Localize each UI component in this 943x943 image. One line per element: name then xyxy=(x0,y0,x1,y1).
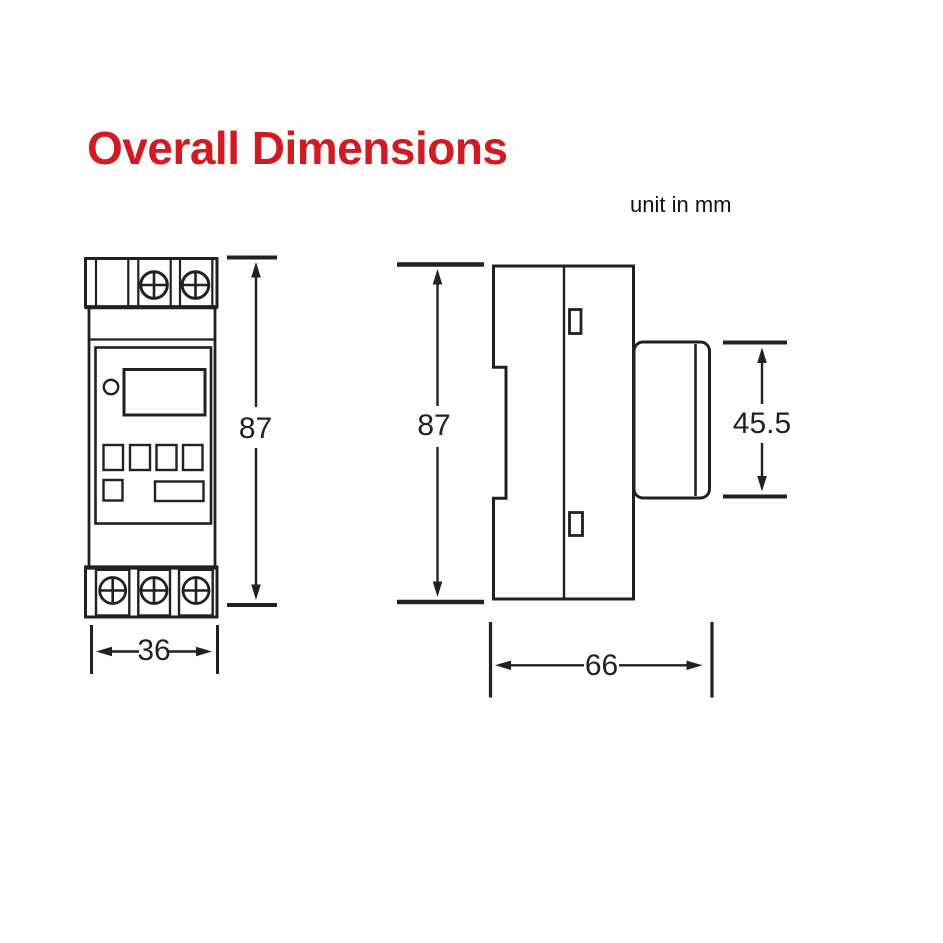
side-view-drawing xyxy=(397,265,787,698)
screw-terminal-icon xyxy=(141,578,167,604)
screw-terminal-icon xyxy=(182,272,209,299)
screw-terminal-icon xyxy=(100,578,126,604)
screw-terminal-icon xyxy=(183,578,209,604)
face-height-label: 45.5 xyxy=(733,409,791,439)
top-terminal-block xyxy=(85,259,217,308)
front-height-label: 87 xyxy=(239,414,272,444)
depth-label: 66 xyxy=(585,651,618,681)
screw-terminal-icon xyxy=(141,272,168,299)
bottom-terminal-block xyxy=(85,567,217,617)
front-view-drawing xyxy=(85,258,277,675)
side-height-label: 87 xyxy=(417,411,450,441)
technical-drawing xyxy=(0,0,943,943)
front-width-label: 36 xyxy=(137,636,170,666)
mounting-clip xyxy=(570,513,583,536)
front-panel xyxy=(96,348,212,524)
mounting-clip xyxy=(570,310,582,334)
dimension-diagram-page: Overall Dimensions unit in mm xyxy=(0,0,943,943)
front-cover-protrusion xyxy=(634,342,710,498)
